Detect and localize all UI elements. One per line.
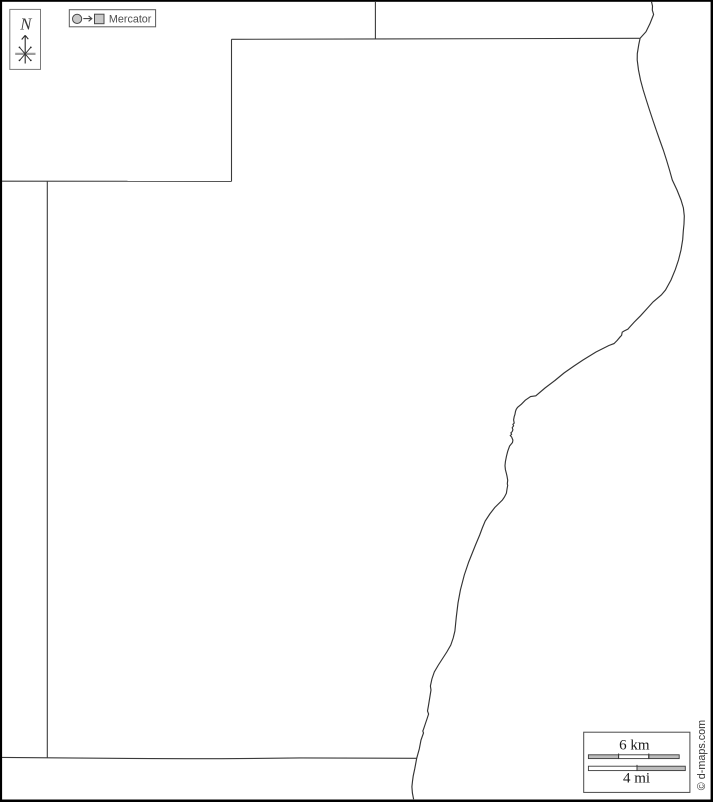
svg-text:Mercator: Mercator [109,14,152,26]
svg-text:4 mi: 4 mi [623,771,650,787]
svg-text:N: N [19,14,32,33]
svg-text:6 km: 6 km [619,737,650,753]
svg-text:© d-maps.com: © d-maps.com [696,720,708,790]
